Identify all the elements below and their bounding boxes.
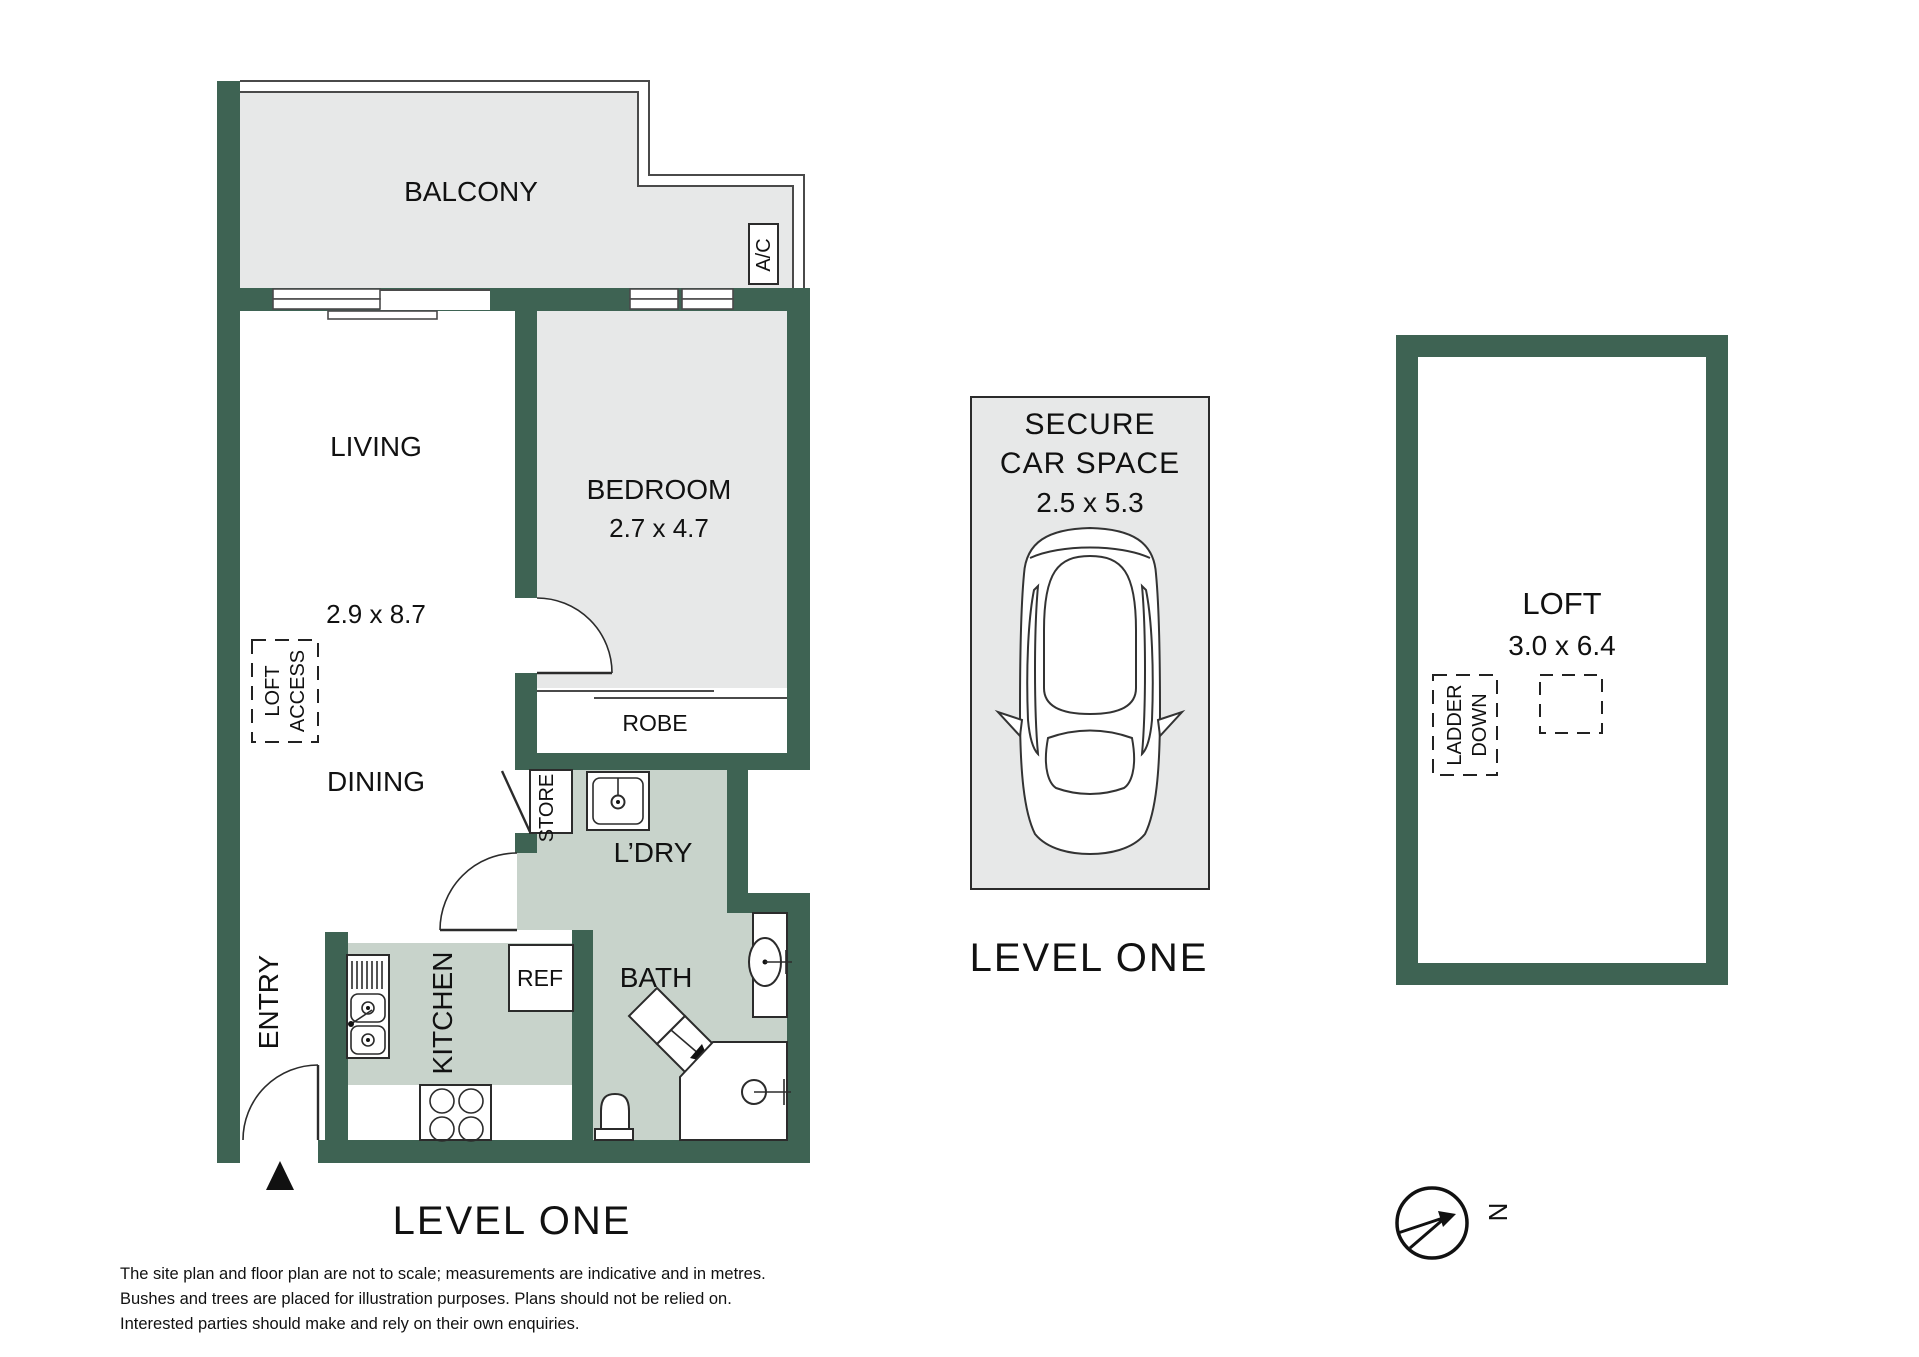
kitchen-sink-icon	[347, 955, 389, 1058]
kitchen-label: KITCHEN	[427, 952, 458, 1075]
loft-access-label-line1: LOFT	[262, 665, 284, 716]
entry-door	[243, 1065, 318, 1140]
ac-label: A/C	[753, 238, 775, 271]
bedroom-window	[682, 299, 733, 309]
balcony-label: BALCONY	[404, 176, 538, 207]
disclaimer-line1: The site plan and floor plan are not to …	[120, 1265, 766, 1283]
car-space-title-line2: CAR SPACE	[1000, 447, 1180, 480]
bedroom-label: BEDROOM	[587, 474, 732, 505]
disclaimer-line3: Interested parties should make and rely …	[120, 1315, 580, 1333]
bedroom-window	[630, 299, 678, 309]
car-space-dimensions: 2.5 x 5.3	[1036, 487, 1143, 518]
vanity-basin-icon	[749, 913, 792, 1017]
dining-label: DINING	[327, 766, 425, 797]
bedroom-window	[682, 289, 733, 299]
living-dimensions: 2.9 x 8.7	[326, 599, 426, 629]
floor-plan-svg: BALCONY LIVING 2.9 x 8.7 DINING BEDROOM …	[0, 0, 1919, 1357]
car-icon	[998, 528, 1182, 854]
level-one-label: LEVEL ONE	[393, 1199, 632, 1243]
compass-north-label: N	[1483, 1203, 1513, 1222]
laundry-tub-icon	[587, 772, 649, 830]
loft-access-label-line2: ACCESS	[287, 650, 309, 732]
disclaimer: The site plan and floor plan are not to …	[120, 1265, 766, 1333]
ladder-down-label-line1: LADDER	[1444, 684, 1466, 765]
compass-icon: N	[1397, 1188, 1513, 1258]
ladder-down-label-line2: DOWN	[1469, 693, 1491, 756]
bedroom-dimensions: 2.7 x 4.7	[609, 513, 709, 543]
entry-label: ENTRY	[253, 954, 284, 1049]
floor-plan-page: BALCONY LIVING 2.9 x 8.7 DINING BEDROOM …	[0, 0, 1919, 1357]
hall-door	[440, 853, 517, 930]
balcony-slider-panel	[273, 299, 380, 309]
entry-arrow-icon	[266, 1161, 294, 1190]
balcony-slider-panel	[273, 289, 380, 299]
balcony-slider-offset-panel	[328, 311, 437, 319]
loft-plan: LOFT 3.0 x 6.4 LADDER DOWN	[1396, 335, 1728, 985]
loft-label: LOFT	[1522, 586, 1601, 621]
fridge-label: REF	[517, 965, 563, 991]
store-label: STORE	[536, 774, 558, 843]
bath-label: BATH	[620, 962, 693, 993]
car-space-level-label: LEVEL ONE	[970, 936, 1209, 980]
living-label: LIVING	[330, 431, 422, 462]
disclaimer-line2: Bushes and trees are placed for illustra…	[120, 1290, 732, 1308]
robe-label: ROBE	[622, 710, 687, 736]
loft-dimensions: 3.0 x 6.4	[1508, 630, 1615, 661]
bedroom-window	[630, 289, 678, 299]
car-space-title-line1: SECURE	[1024, 408, 1155, 441]
laundry-label: L’DRY	[614, 837, 693, 868]
car-space: SECURE CAR SPACE 2.5 x 5.3 LEVEL ONE	[970, 397, 1209, 980]
main-floor-plan: BALCONY LIVING 2.9 x 8.7 DINING BEDROOM …	[217, 81, 810, 1243]
stove-icon	[420, 1085, 491, 1141]
